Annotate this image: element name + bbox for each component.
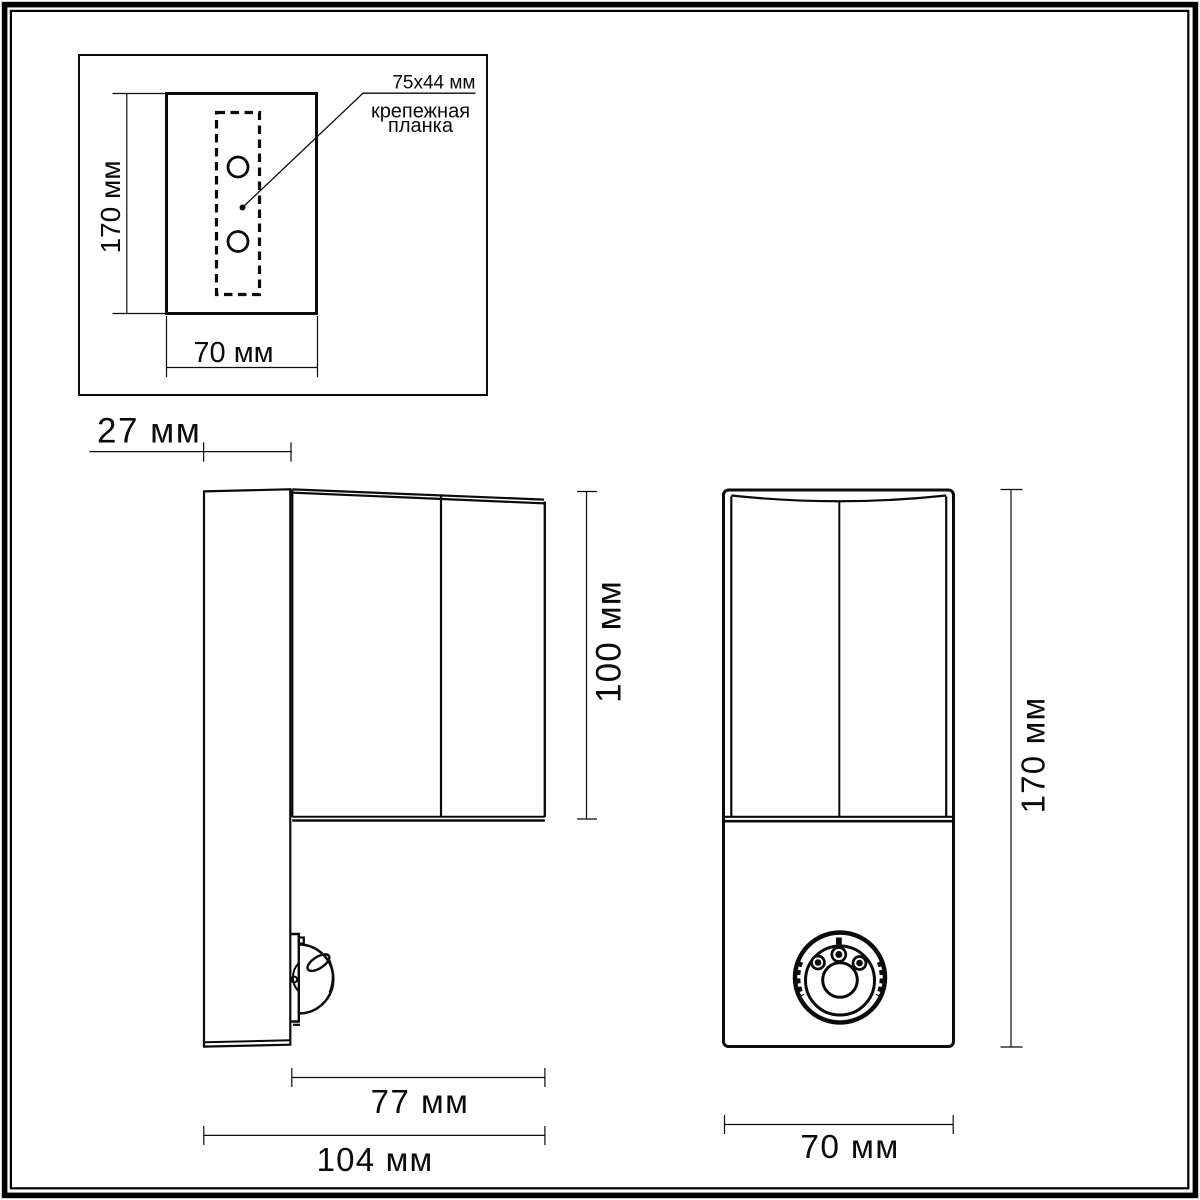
svg-text:170 мм: 170 мм (1015, 697, 1052, 814)
svg-text:75x44 мм: 75x44 мм (392, 73, 475, 94)
svg-text:100 мм: 100 мм (590, 580, 629, 703)
svg-text:70 мм: 70 мм (800, 1129, 899, 1166)
svg-text:70 мм: 70 мм (193, 337, 273, 369)
svg-text:170 мм: 170 мм (95, 161, 126, 254)
svg-text:104 мм: 104 мм (317, 1141, 434, 1178)
svg-text:77 мм: 77 мм (371, 1083, 470, 1120)
svg-text:планка: планка (388, 115, 454, 137)
svg-text:27 мм: 27 мм (97, 412, 201, 451)
